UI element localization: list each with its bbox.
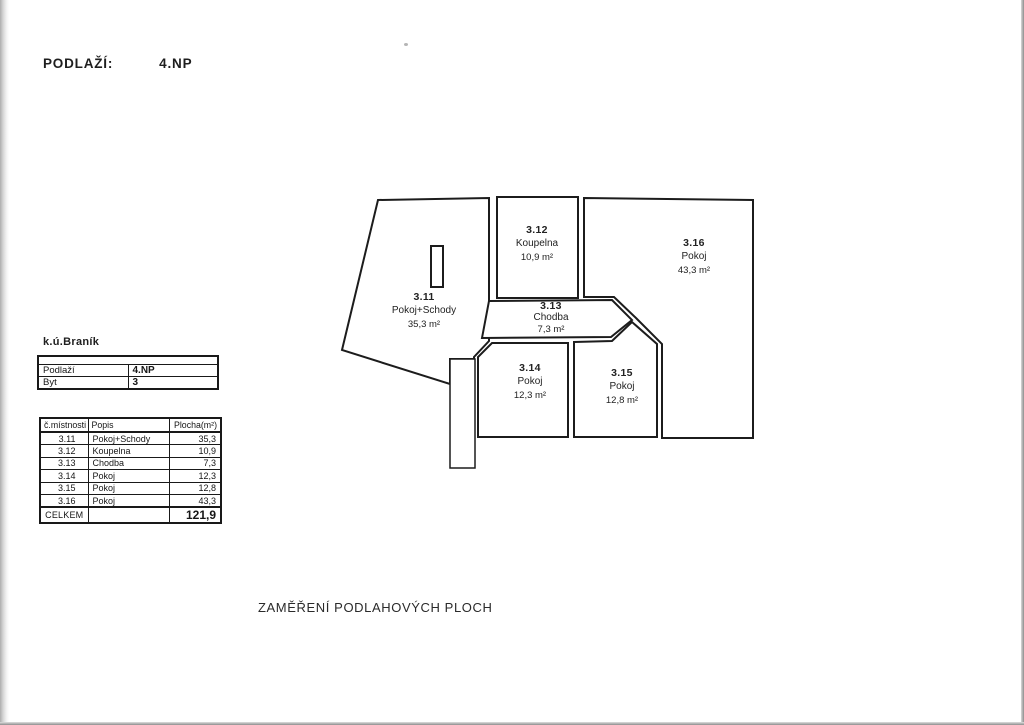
room-3-11-outline	[342, 198, 489, 384]
floorplan-drawing	[0, 0, 1024, 725]
room-3-12-outline	[497, 197, 578, 298]
page-caption: ZAMĚŘENÍ PODLAHOVÝCH PLOCH	[258, 600, 492, 615]
room-3-13-outline	[482, 300, 632, 338]
scanned-floorplan-page: PODLAŽÍ: 4.NP k.ú.Braník Podlaží 4.NP By…	[0, 0, 1024, 725]
stairwell-outline	[450, 359, 475, 468]
chimney-outline	[431, 246, 443, 287]
room-3-14-outline	[478, 343, 568, 437]
room-3-15-outline	[574, 322, 657, 437]
